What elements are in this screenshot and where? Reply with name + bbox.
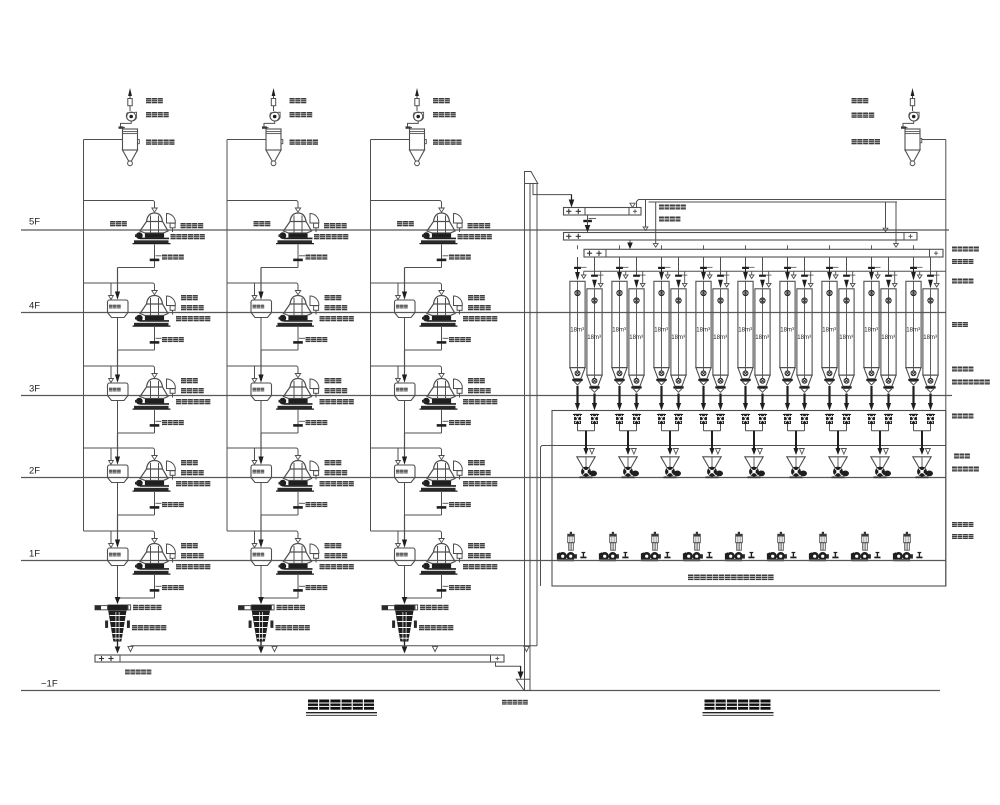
svg-text:18m³: 18m³ [822, 328, 836, 334]
svg-text:18m³: 18m³ [906, 328, 920, 334]
svg-text:3F: 3F [29, 384, 40, 395]
svg-text:18m³: 18m³ [839, 335, 853, 341]
svg-text:2F: 2F [29, 466, 40, 477]
svg-text:18m³: 18m³ [923, 335, 937, 341]
svg-text:18m³: 18m³ [612, 328, 626, 334]
svg-text:5F: 5F [29, 217, 40, 228]
svg-text:18m³: 18m³ [755, 335, 769, 341]
svg-text:18m³: 18m³ [738, 328, 752, 334]
svg-text:18m³: 18m³ [671, 335, 685, 341]
svg-text:18m³: 18m³ [797, 335, 811, 341]
svg-text:−1F: −1F [41, 679, 58, 690]
svg-text:18m³: 18m³ [570, 328, 584, 334]
svg-text:4F: 4F [29, 301, 40, 312]
svg-text:18m³: 18m³ [587, 335, 601, 341]
svg-text:18m³: 18m³ [864, 328, 878, 334]
svg-text:18m³: 18m³ [780, 328, 794, 334]
svg-text:18m³: 18m³ [696, 328, 710, 334]
svg-text:18m³: 18m³ [654, 328, 668, 334]
svg-text:1F: 1F [29, 549, 40, 560]
svg-text:18m³: 18m³ [881, 335, 895, 341]
svg-text:18m³: 18m³ [629, 335, 643, 341]
svg-text:18m³: 18m³ [713, 335, 727, 341]
